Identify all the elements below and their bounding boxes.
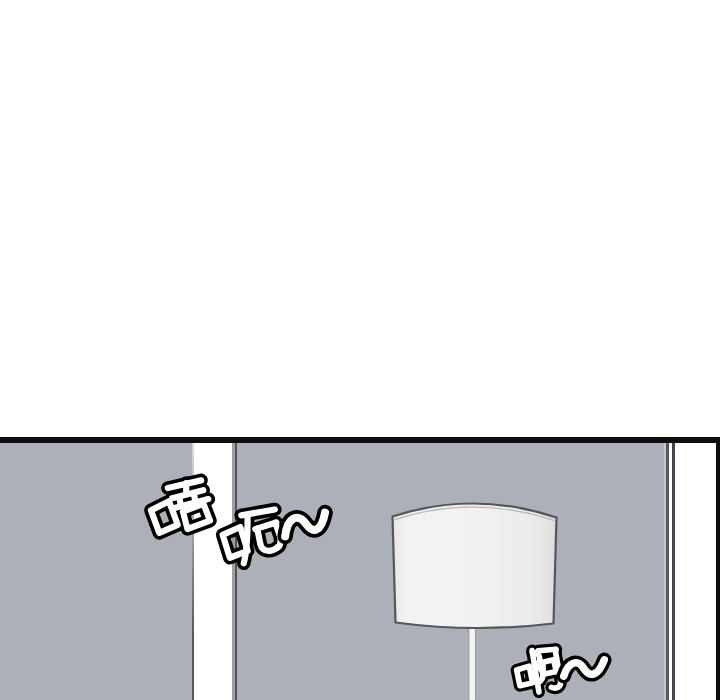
panel-right-border	[716, 443, 720, 700]
wall-left	[0, 443, 192, 700]
wall-main	[237, 443, 665, 700]
comic-page: 唔 呃~ 啊~	[0, 0, 720, 700]
page-blank-area	[0, 0, 720, 437]
page-right-margin	[675, 443, 717, 700]
door-gap	[194, 443, 232, 700]
